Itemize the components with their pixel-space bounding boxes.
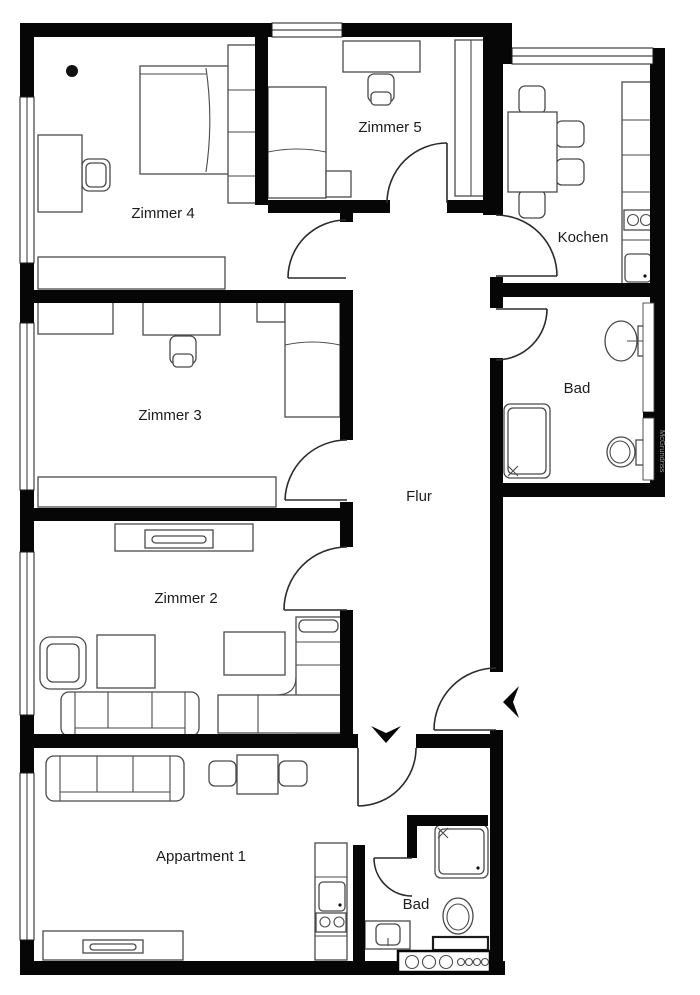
room-label-bad-appartment1: Bad bbox=[403, 896, 430, 913]
window-appartment1 bbox=[20, 773, 34, 940]
single-bed bbox=[285, 298, 340, 417]
floor-plan: Zimmer 4 Zimmer 5 Kochen Bad Zimmer 3 Fl… bbox=[0, 0, 700, 995]
entrance-arrow-down-icon bbox=[371, 726, 401, 743]
desk bbox=[143, 302, 220, 335]
room-zimmer3 bbox=[38, 298, 340, 507]
desk bbox=[343, 41, 420, 72]
desk-chair bbox=[368, 74, 394, 105]
room-bad-appartment1 bbox=[365, 825, 488, 950]
room-label-bad: Bad bbox=[564, 380, 591, 397]
room-bad bbox=[504, 321, 650, 478]
stove-hob bbox=[624, 210, 653, 230]
sideboard bbox=[38, 257, 225, 289]
door-zimmer5 bbox=[387, 143, 447, 203]
sideboard bbox=[38, 477, 276, 507]
window-zimmer4 bbox=[20, 97, 34, 263]
door-main-entrance bbox=[434, 668, 496, 730]
entrance-arrow-left-icon bbox=[503, 686, 519, 718]
window-zimmer5 bbox=[272, 23, 342, 37]
room-label-kochen: Kochen bbox=[558, 229, 609, 246]
window-zimmer2 bbox=[20, 552, 34, 715]
room-zimmer2 bbox=[40, 524, 341, 736]
dining-set bbox=[209, 755, 307, 794]
desk-chair bbox=[170, 336, 196, 367]
dot-marker bbox=[66, 65, 78, 77]
floor-plan-drawing: Zimmer 4 Zimmer 5 Kochen Bad Zimmer 3 Fl… bbox=[0, 0, 700, 995]
armchair bbox=[40, 637, 86, 689]
shelf bbox=[38, 300, 113, 334]
door-zimmer2 bbox=[284, 547, 347, 610]
sofa bbox=[61, 692, 199, 736]
dining-table bbox=[508, 112, 557, 192]
nightstand bbox=[257, 300, 285, 322]
kitchen-sink bbox=[625, 254, 651, 282]
coffee-table bbox=[97, 635, 155, 688]
single-bed bbox=[268, 87, 326, 198]
door-bad-appartment1 bbox=[374, 858, 412, 896]
coffee-table bbox=[224, 632, 285, 675]
wardrobe bbox=[228, 45, 256, 203]
door-kochen bbox=[496, 215, 557, 276]
shower bbox=[435, 825, 488, 878]
tv-sideboard bbox=[115, 524, 253, 551]
shower bbox=[504, 404, 550, 478]
kitchen-sink bbox=[319, 882, 345, 911]
washbasin bbox=[365, 921, 410, 949]
door-zimmer3 bbox=[285, 440, 347, 500]
door-zimmer4 bbox=[288, 220, 346, 278]
nightstand bbox=[326, 171, 351, 197]
room-label-zimmer4: Zimmer 4 bbox=[131, 205, 194, 222]
desk bbox=[38, 135, 82, 212]
room-label-appartment1: Appartment 1 bbox=[156, 848, 246, 865]
door-bad bbox=[496, 309, 547, 360]
window-zimmer3 bbox=[20, 323, 34, 490]
window-kochen bbox=[512, 48, 653, 64]
double-bed bbox=[140, 66, 229, 174]
watermark: McGrundriss bbox=[658, 430, 667, 473]
room-kochen bbox=[508, 82, 653, 288]
window-bad bbox=[643, 303, 654, 480]
tv-sideboard bbox=[43, 931, 183, 960]
kitchenette bbox=[315, 843, 347, 960]
dining-table bbox=[237, 755, 278, 794]
toilet bbox=[433, 898, 488, 950]
room-zimmer4 bbox=[38, 45, 256, 289]
desk-chair bbox=[82, 159, 110, 191]
room-label-zimmer5: Zimmer 5 bbox=[358, 119, 421, 136]
sofa bbox=[46, 756, 184, 801]
circle-fixture bbox=[398, 951, 490, 972]
room-label-flur: Flur bbox=[406, 488, 432, 505]
room-label-zimmer3: Zimmer 3 bbox=[138, 407, 201, 424]
door-appartment1 bbox=[358, 748, 416, 806]
room-label-zimmer2: Zimmer 2 bbox=[154, 590, 217, 607]
